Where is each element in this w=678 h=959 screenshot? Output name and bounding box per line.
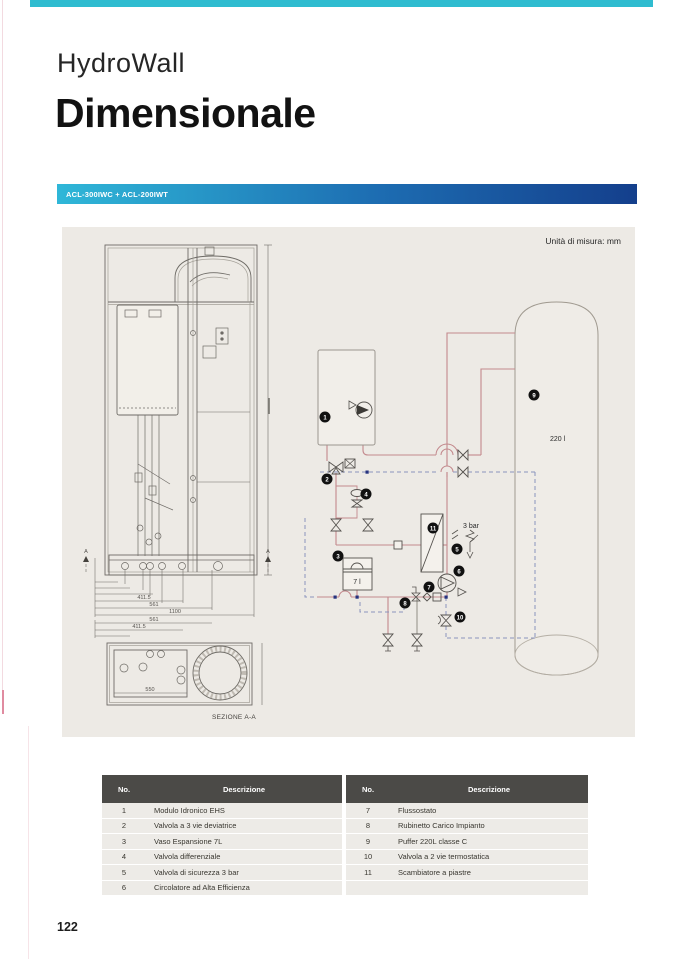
model-bar: ACL-300IWC + ACL-200IWT (57, 184, 637, 204)
model-bar-label: ACL-300IWC + ACL-200IWT (57, 190, 168, 199)
table-row: 4Valvola differenziale (102, 850, 342, 866)
dim-561-top: 561 (149, 602, 158, 608)
table-row: 5Valvola di sicurezza 3 bar (102, 865, 342, 881)
product-name: HydroWall (57, 48, 185, 79)
table-row: 7Flussostato (346, 803, 588, 819)
col-desc-header: Descrizione (146, 785, 342, 794)
col-no-header: No. (346, 785, 390, 794)
table-row: 1Modulo Idronico EHS (102, 803, 342, 819)
buffer-tank (515, 302, 598, 675)
left-crop-mark (2, 0, 3, 712)
component-table-left: No. Descrizione 1Modulo Idronico EHS 2Va… (102, 775, 342, 896)
dim-561-bottom: 561 (149, 617, 158, 623)
component-table-right: No. Descrizione 7Flussostato 8Rubinetto … (346, 775, 588, 896)
table-row: 3Vaso Espansione 7L (102, 834, 342, 850)
table-row: 9Puffer 220L classe C (346, 834, 588, 850)
table-row: 6Circolatore ad Alta Efficienza (102, 881, 342, 897)
left-crop-mark-lower (28, 726, 29, 959)
cut-marker-a-right: A (266, 549, 270, 555)
col-desc-header: Descrizione (390, 785, 588, 794)
pressure-label: 3 bar (463, 523, 480, 530)
catalog-page: HydroWall Dimensionale ACL-300IWC + ACL-… (0, 0, 678, 959)
dim-1100: 1100 (169, 609, 181, 615)
table-row: 11Scambiatore a piastre (346, 865, 588, 881)
page-number: 122 (57, 920, 78, 934)
svg-text:10: 10 (457, 616, 464, 622)
section-label: SEZIONE A-A (212, 714, 256, 721)
hydraulic-schematic: 3 bar 7 l 220 l 1 2 3 4 5 6 7 8 9 10 11 (300, 290, 615, 690)
dim-550: 550 (145, 687, 154, 693)
page-title: Dimensionale (55, 90, 316, 137)
table-header: No. Descrizione (346, 775, 588, 803)
table-row: 8Rubinetto Carico Impianto (346, 819, 588, 835)
col-no-header: No. (102, 785, 146, 794)
drawing-panel: Unità di misura: mm (62, 227, 635, 737)
units-note: Unità di misura: mm (545, 236, 621, 246)
dim-411-bottom: 411.5 (132, 624, 145, 630)
table-header: No. Descrizione (102, 775, 342, 803)
table-row: 10Valvola a 2 vie termostatica (346, 850, 588, 866)
ehs-module (318, 350, 375, 445)
table-row: 2Valvola a 3 vie deviatrice (102, 819, 342, 835)
top-accent-bar (30, 0, 653, 7)
cut-marker-a-left: A (84, 549, 88, 555)
svg-text:11: 11 (430, 527, 437, 533)
tank-volume-label: 220 l (550, 436, 566, 443)
dim-411-top: 411.5 (137, 595, 150, 601)
left-binding-mark (2, 690, 4, 714)
vessel-volume-label: 7 l (353, 579, 361, 586)
table-row-empty (346, 881, 588, 897)
dimensional-drawing: 411.5 561 1100 561 411.5 550 A A SEZIONE… (78, 238, 298, 730)
